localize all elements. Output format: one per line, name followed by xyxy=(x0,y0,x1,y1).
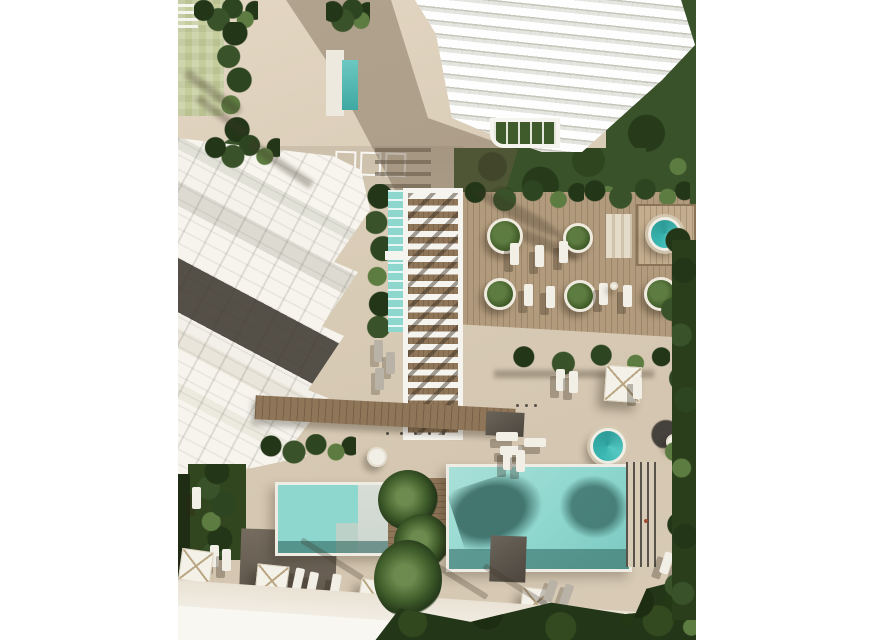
spa-round-pool xyxy=(590,428,626,464)
sun-lounger xyxy=(510,243,519,265)
sun-lounger xyxy=(375,368,384,390)
sun-lounger xyxy=(374,340,383,362)
tree-column-right xyxy=(672,240,696,620)
sun-lounger xyxy=(556,369,565,391)
pergola-walkway xyxy=(403,188,463,440)
sun-lounger xyxy=(503,448,512,470)
tower-lap-pool xyxy=(342,60,358,110)
sun-lounger xyxy=(633,377,642,399)
swimming-pool-right xyxy=(446,464,632,572)
swimmer xyxy=(644,519,648,523)
sun-lounger xyxy=(386,352,395,374)
palm-shadow-on-water xyxy=(553,468,635,545)
round-table xyxy=(367,447,387,467)
square-parasol xyxy=(178,548,214,584)
sun-lounger xyxy=(496,432,518,441)
sun-lounger xyxy=(516,450,525,472)
sun-lounger xyxy=(599,283,608,305)
aerial-render xyxy=(178,0,696,640)
pool-shadow-band xyxy=(278,541,392,553)
round-planter xyxy=(484,278,516,310)
left-apartment-building xyxy=(178,138,370,478)
sun-lounger xyxy=(524,284,533,306)
side-table xyxy=(610,282,618,290)
path-lights xyxy=(516,404,542,408)
sun-lounger xyxy=(524,438,546,447)
round-planter xyxy=(564,280,596,312)
sun-lounger xyxy=(535,245,544,267)
pool-edge-slats xyxy=(626,462,656,567)
sun-lounger xyxy=(222,549,231,571)
bushes-row xyxy=(256,434,356,464)
render-canvas xyxy=(0,0,877,640)
pool-shadow-band xyxy=(449,549,629,569)
sun-lounger xyxy=(546,286,555,308)
path-lights xyxy=(386,432,456,436)
pergola-slat-shadow xyxy=(408,193,458,435)
tower-planter-terrace xyxy=(490,118,560,148)
palm-tree-bottom xyxy=(374,540,442,618)
sun-lounger xyxy=(192,487,201,509)
swimming-pool-left xyxy=(275,482,395,556)
sun-lounger xyxy=(569,371,578,393)
sun-lounger xyxy=(623,285,632,307)
sun-lounger xyxy=(559,583,575,607)
jacuzzi-steps xyxy=(606,214,632,258)
trees-near-tower xyxy=(326,0,370,38)
sun-lounger xyxy=(559,241,568,263)
